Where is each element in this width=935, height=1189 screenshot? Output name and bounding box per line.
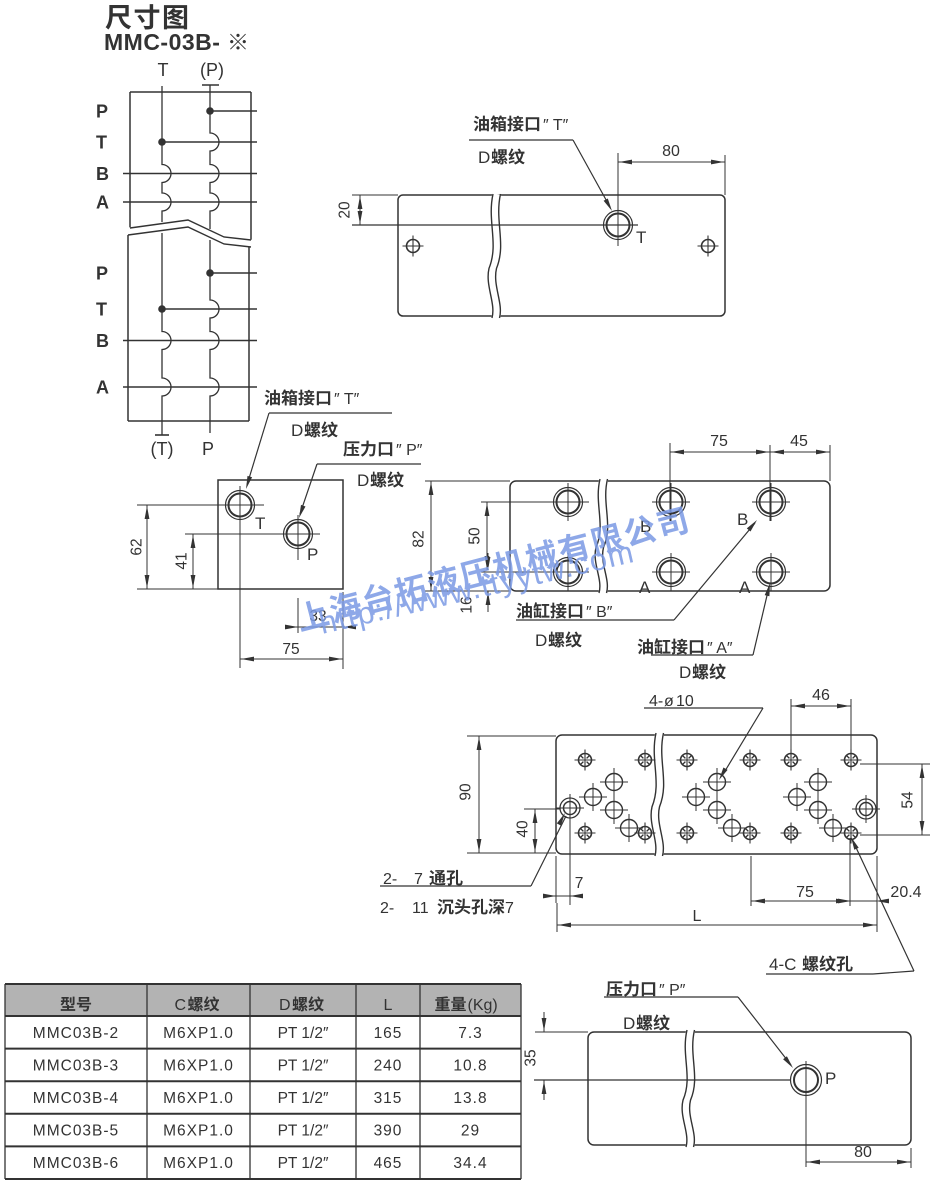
svg-text:M6XP1.0: M6XP1.0 xyxy=(163,1025,234,1042)
svg-text:M6XP1.0: M6XP1.0 xyxy=(163,1155,234,1172)
svg-text:75: 75 xyxy=(796,884,814,901)
svg-text:D: D xyxy=(478,148,490,167)
svg-text:50: 50 xyxy=(467,527,484,545)
svg-text:7: 7 xyxy=(505,900,514,917)
svg-text:(Kg): (Kg) xyxy=(468,997,498,1014)
svg-text:PT 1/2″: PT 1/2″ xyxy=(278,1057,329,1074)
svg-text:P: P xyxy=(96,264,108,284)
svg-text:75: 75 xyxy=(710,433,728,450)
svg-text:7.3: 7.3 xyxy=(458,1025,483,1042)
svg-text:46: 46 xyxy=(812,687,830,704)
svg-text:35: 35 xyxy=(523,1049,540,1066)
svg-text:B: B xyxy=(96,331,109,351)
svg-text:4-C: 4-C xyxy=(769,955,796,974)
svg-text:T: T xyxy=(96,133,107,153)
svg-text:B: B xyxy=(737,510,748,529)
svg-text:PT 1/2″: PT 1/2″ xyxy=(278,1025,329,1042)
svg-text:240: 240 xyxy=(374,1057,403,1074)
svg-text:MMC03B-6: MMC03B-6 xyxy=(33,1155,119,1172)
svg-text:D: D xyxy=(279,997,291,1014)
svg-text:A: A xyxy=(96,193,109,213)
svg-text:A: A xyxy=(96,378,109,398)
svg-text:T: T xyxy=(255,514,265,533)
svg-text:MMC03B-2: MMC03B-2 xyxy=(33,1025,119,1042)
svg-text:315: 315 xyxy=(374,1090,403,1107)
svg-text:20.4: 20.4 xyxy=(890,884,921,901)
svg-text:PT 1/2″: PT 1/2″ xyxy=(278,1155,329,1172)
svg-text:T: T xyxy=(158,60,169,80)
svg-text:(T): (T) xyxy=(151,439,174,459)
svg-text:″ B″: ″ B″ xyxy=(586,604,613,621)
svg-text:11: 11 xyxy=(412,900,429,917)
svg-text:″ P″: ″ P″ xyxy=(396,442,423,459)
svg-text:7: 7 xyxy=(575,875,584,892)
svg-text:M6XP1.0: M6XP1.0 xyxy=(163,1090,234,1107)
svg-text:C: C xyxy=(175,997,187,1014)
svg-text:PT 1/2″: PT 1/2″ xyxy=(278,1090,329,1107)
svg-text:T: T xyxy=(96,300,107,320)
svg-text:75: 75 xyxy=(282,641,299,658)
svg-text:390: 390 xyxy=(374,1123,403,1140)
svg-text:29: 29 xyxy=(461,1123,480,1140)
svg-text:P: P xyxy=(307,545,318,564)
svg-text:45: 45 xyxy=(790,433,808,450)
svg-text:A: A xyxy=(639,578,651,597)
svg-text:″ T″: ″ T″ xyxy=(543,117,569,134)
svg-text:D: D xyxy=(679,663,691,682)
svg-text:62: 62 xyxy=(129,538,146,555)
svg-text:D: D xyxy=(357,471,369,490)
svg-text:90: 90 xyxy=(458,783,475,801)
svg-text:L: L xyxy=(693,908,702,925)
svg-text:165: 165 xyxy=(374,1025,403,1042)
svg-text:82: 82 xyxy=(411,530,428,547)
svg-text:34.4: 34.4 xyxy=(453,1155,487,1172)
svg-text:M6XP1.0: M6XP1.0 xyxy=(163,1057,234,1074)
svg-text:D: D xyxy=(535,631,547,650)
svg-text:B: B xyxy=(96,164,109,184)
svg-text:40: 40 xyxy=(515,820,532,838)
svg-text:MMC-03B-: MMC-03B- xyxy=(104,29,220,55)
svg-text:″ T″: ″ T″ xyxy=(334,391,360,408)
svg-text:MMC03B-4: MMC03B-4 xyxy=(33,1090,119,1107)
svg-text:41: 41 xyxy=(174,552,191,569)
svg-text:A: A xyxy=(739,578,751,597)
svg-text:MMC03B-3: MMC03B-3 xyxy=(33,1057,119,1074)
svg-text:80: 80 xyxy=(662,143,680,160)
svg-text:D: D xyxy=(623,1014,635,1033)
svg-text:2-: 2- xyxy=(380,900,394,917)
svg-text:P: P xyxy=(202,439,214,459)
svg-text:(P): (P) xyxy=(200,60,224,80)
svg-text:L: L xyxy=(384,997,393,1014)
svg-text:54: 54 xyxy=(900,791,917,809)
svg-text:D: D xyxy=(291,421,303,440)
svg-text:PT 1/2″: PT 1/2″ xyxy=(278,1123,329,1140)
svg-text:T: T xyxy=(636,228,646,247)
svg-text:80: 80 xyxy=(854,1144,872,1161)
svg-text:P: P xyxy=(96,102,108,122)
svg-text:465: 465 xyxy=(374,1155,403,1172)
svg-text:P: P xyxy=(825,1069,836,1088)
svg-text:13.8: 13.8 xyxy=(453,1090,487,1107)
svg-text:20: 20 xyxy=(337,201,354,219)
svg-text:M6XP1.0: M6XP1.0 xyxy=(163,1123,234,1140)
svg-text:MMC03B-5: MMC03B-5 xyxy=(33,1123,119,1140)
svg-text:10.8: 10.8 xyxy=(453,1057,487,1074)
